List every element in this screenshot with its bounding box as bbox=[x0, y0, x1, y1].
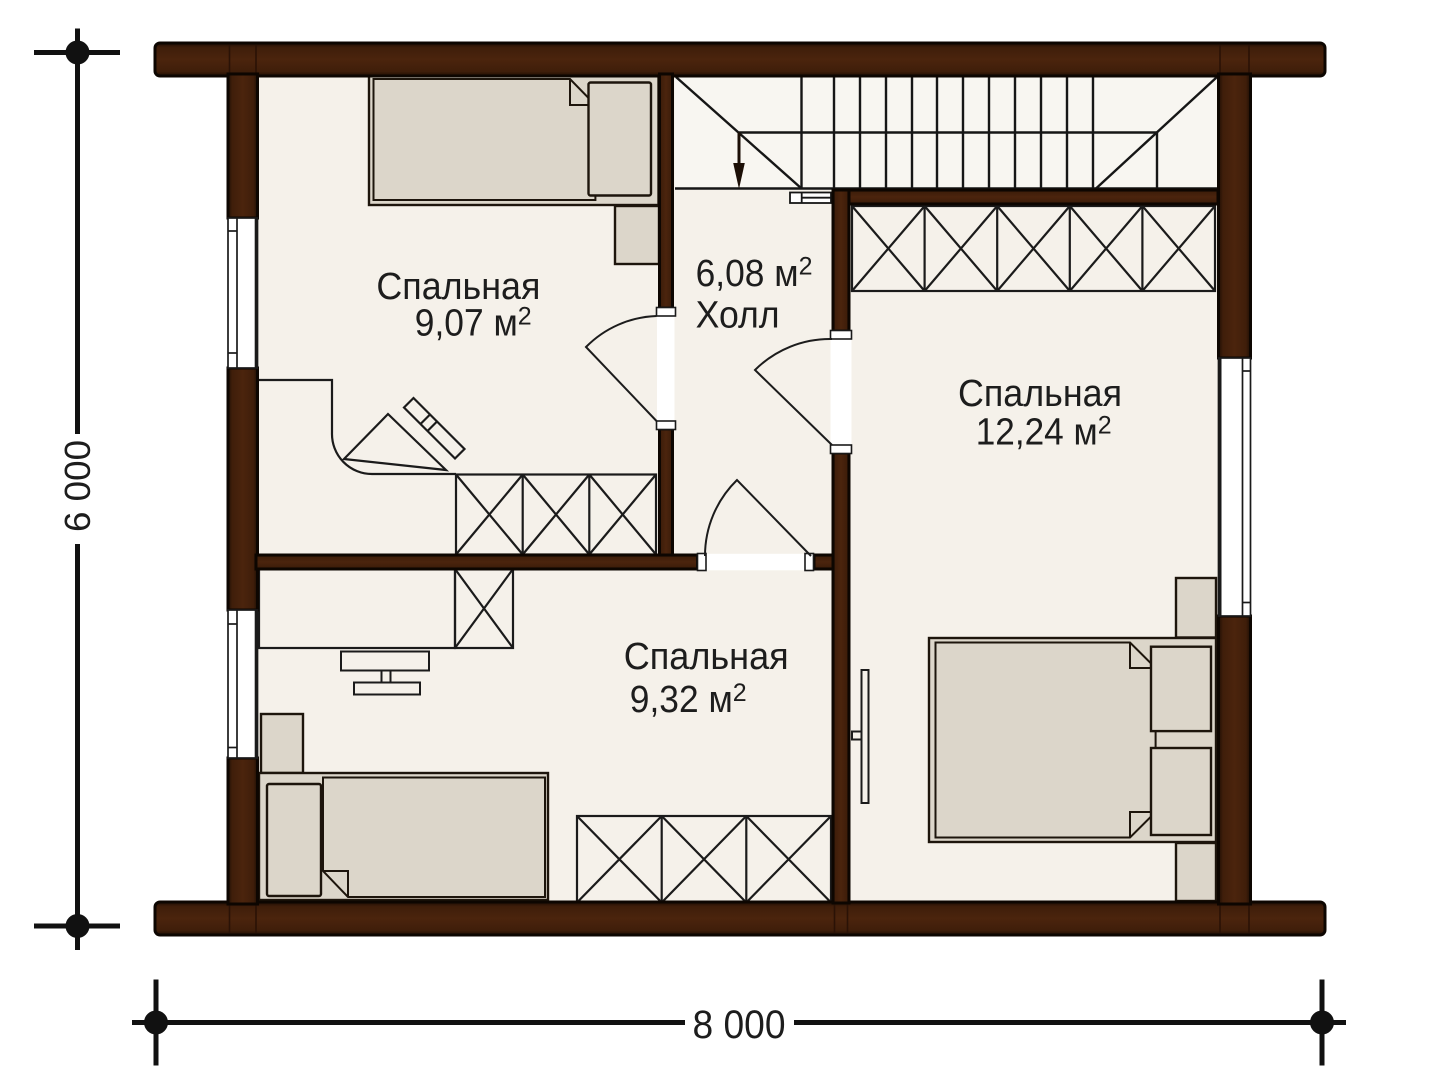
svg-text:9,07 м2: 9,07 м2 bbox=[415, 303, 532, 345]
svg-text:Спальная: Спальная bbox=[624, 636, 789, 678]
svg-text:Холл: Холл bbox=[696, 295, 780, 337]
svg-text:Спальная: Спальная bbox=[958, 373, 1122, 415]
svg-text:12,24 м2: 12,24 м2 bbox=[976, 412, 1112, 454]
svg-text:6,08 м2: 6,08 м2 bbox=[696, 253, 813, 296]
svg-text:6 000: 6 000 bbox=[57, 440, 98, 532]
svg-text:9,32 м2: 9,32 м2 bbox=[630, 679, 747, 721]
svg-text:8 000: 8 000 bbox=[693, 1003, 786, 1047]
